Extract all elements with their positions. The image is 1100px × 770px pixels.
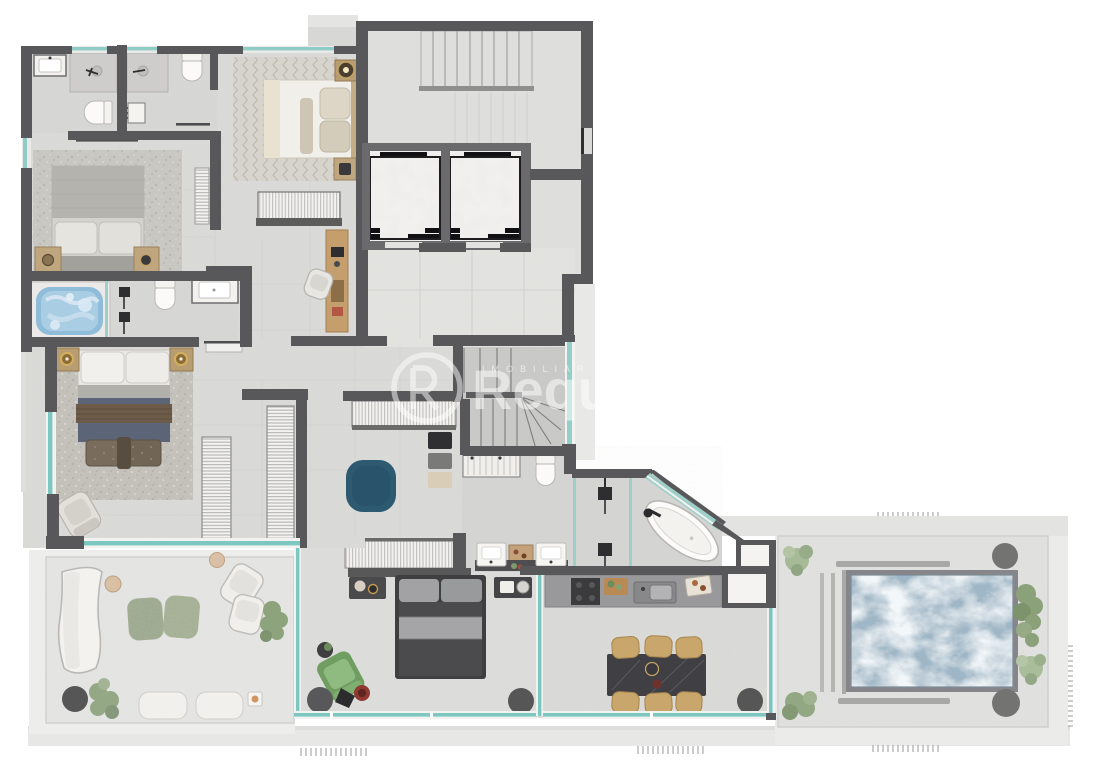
svg-text:Requ: Requ (472, 358, 612, 421)
